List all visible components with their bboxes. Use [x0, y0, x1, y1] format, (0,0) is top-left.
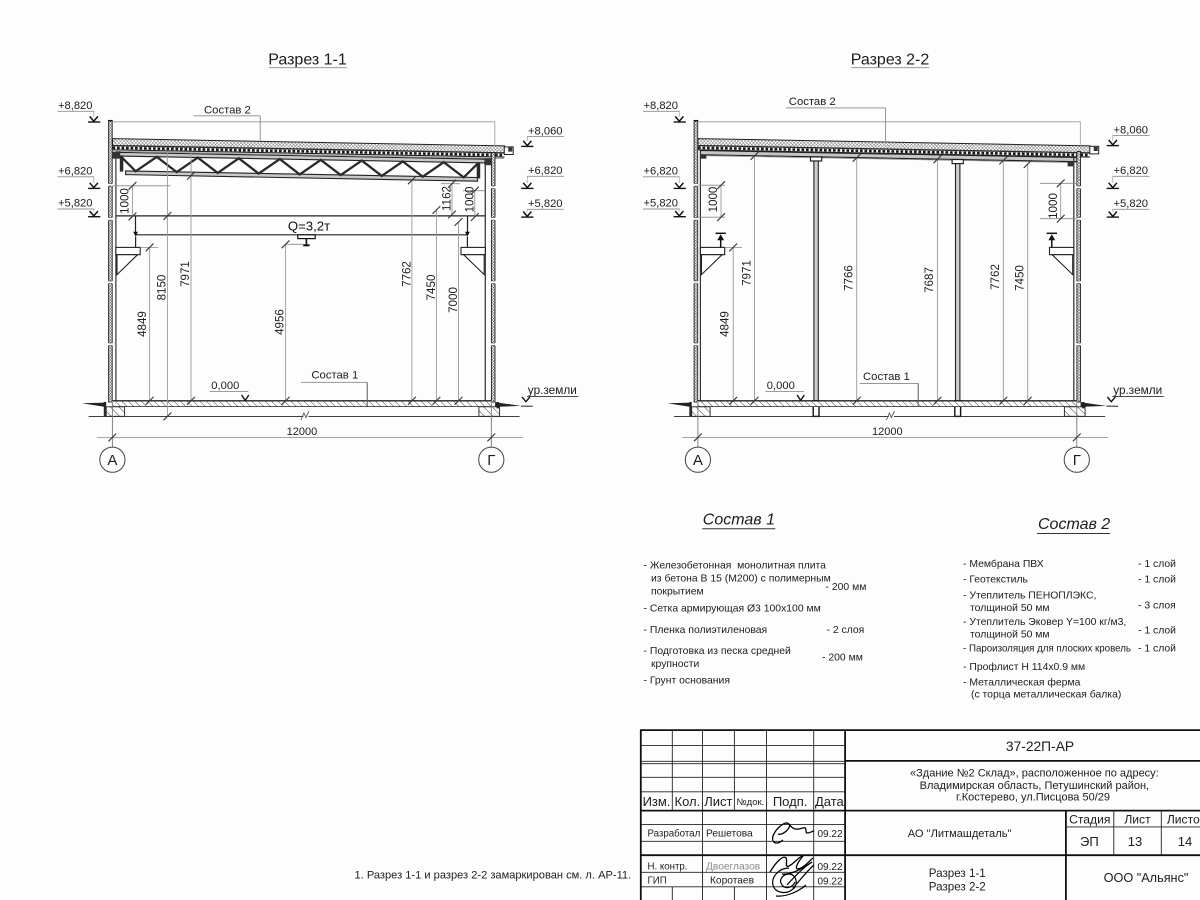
- svg-text:из бетона В 15 (М200) с полиме: из бетона В 15 (М200) с полимерным: [651, 573, 831, 585]
- svg-text:толщиной 50 мм: толщиной 50 мм: [970, 630, 1050, 641]
- svg-text:- Утеплитель ПЕНОПЛЭКС,: - Утеплитель ПЕНОПЛЭКС,: [963, 591, 1096, 602]
- svg-text:7450: 7450: [1014, 265, 1027, 291]
- svg-text:- Мембрана ПВХ: - Мембрана ПВХ: [963, 558, 1044, 570]
- svg-text:1000: 1000: [1047, 193, 1060, 219]
- svg-text:г.Костерево, ул.Писцова 50/29: г.Костерево, ул.Писцова 50/29: [956, 791, 1110, 803]
- svg-text:09.22: 09.22: [818, 829, 843, 840]
- svg-text:ГИП: ГИП: [648, 876, 667, 887]
- svg-text:+8,060: +8,060: [1114, 124, 1149, 136]
- svg-text:13: 13: [1128, 834, 1142, 849]
- svg-text:- Пароизоляция для плоских кро: - Пароизоляция для плоских кровель: [963, 644, 1131, 655]
- svg-text:А: А: [693, 452, 703, 469]
- svg-text:- Подготовка из песка средней: - Подготовка из песка средней: [644, 646, 792, 657]
- svg-text:- Геотекстиль: - Геотекстиль: [963, 575, 1028, 586]
- svg-text:7687: 7687: [923, 267, 936, 293]
- svg-text:АО "Литмашдеталь": АО "Литмашдеталь": [908, 828, 1012, 840]
- svg-text:7766: 7766: [843, 265, 856, 291]
- svg-text:7971: 7971: [179, 261, 192, 287]
- svg-text:Состав 2: Состав 2: [204, 105, 251, 117]
- svg-text:Кол.: Кол.: [675, 794, 701, 809]
- svg-text:Разрез 2-2: Разрез 2-2: [851, 51, 930, 68]
- svg-text:Изм.: Изм.: [643, 794, 671, 809]
- svg-text:37-22П-АР: 37-22П-АР: [1006, 739, 1074, 754]
- svg-text:- 3 слоя: - 3 слоя: [1138, 601, 1176, 612]
- svg-text:- 1 слой: - 1 слой: [1138, 644, 1176, 655]
- svg-text:7971: 7971: [741, 260, 754, 286]
- svg-text:- Профлист Н 114х0.9 мм: - Профлист Н 114х0.9 мм: [963, 661, 1085, 673]
- svg-text:Состав 1: Состав 1: [863, 371, 910, 383]
- svg-text:№док.: №док.: [736, 797, 764, 808]
- svg-text:4849: 4849: [719, 311, 732, 337]
- svg-text:+8,060: +8,060: [528, 125, 563, 137]
- svg-text:ООО "Альянс": ООО "Альянс": [1104, 871, 1189, 885]
- svg-text:Разработал: Разработал: [648, 828, 701, 839]
- svg-text:Н. контр.: Н. контр.: [648, 861, 688, 872]
- svg-text:Состав 2: Состав 2: [789, 96, 836, 108]
- svg-text:- 2 слоя: - 2 слоя: [827, 625, 865, 636]
- svg-text:7762: 7762: [989, 264, 1002, 290]
- svg-text:0,000: 0,000: [211, 380, 239, 392]
- svg-text:Листов: Листов: [1167, 812, 1200, 826]
- svg-text:1000: 1000: [463, 187, 476, 213]
- svg-text:ур.земли: ур.земли: [1113, 383, 1162, 397]
- svg-text:крупности: крупности: [651, 659, 700, 670]
- svg-text:Q=3,2т: Q=3,2т: [288, 219, 330, 234]
- svg-text:Коротаев: Коротаев: [710, 876, 754, 887]
- svg-text:Владимирская область, Петушинс: Владимирская область, Петушинский район,: [920, 780, 1149, 792]
- svg-text:7762: 7762: [400, 261, 413, 287]
- svg-text:- 1 слой: - 1 слой: [1138, 559, 1176, 570]
- svg-text:12000: 12000: [872, 426, 903, 438]
- svg-text:Состав 2: Состав 2: [1038, 516, 1110, 533]
- svg-text:1000: 1000: [118, 188, 131, 214]
- svg-text:12000: 12000: [287, 426, 318, 438]
- svg-text:4956: 4956: [273, 309, 286, 335]
- svg-text:- 1 слой: - 1 слой: [1138, 575, 1176, 586]
- svg-text:- Пленка полиэтиленовая: - Пленка полиэтиленовая: [644, 625, 768, 636]
- svg-text:«Здание №2 Склад», расположенн: «Здание №2 Склад», расположенное по адре…: [910, 768, 1159, 780]
- svg-text:7450: 7450: [425, 275, 438, 301]
- svg-text:1. Разрез 1-1 и разрез 2-2 зам: 1. Разрез 1-1 и разрез 2-2 замаркирован …: [355, 869, 632, 881]
- svg-text:Решетова: Решетова: [706, 828, 753, 839]
- svg-text:+5,820: +5,820: [1114, 198, 1149, 210]
- svg-text:+5,820: +5,820: [58, 198, 93, 210]
- svg-text:Состав 1: Состав 1: [703, 512, 775, 529]
- svg-text:- Железобетонная монолитная п: - Железобетонная монолитная плита: [644, 560, 827, 572]
- svg-text:Г: Г: [487, 452, 495, 469]
- svg-text:4849: 4849: [136, 311, 149, 337]
- svg-text:- 1 слой: - 1 слой: [1138, 626, 1176, 637]
- svg-text:09.22: 09.22: [818, 862, 843, 873]
- svg-text:+5,820: +5,820: [643, 198, 678, 210]
- svg-text:+6,820: +6,820: [58, 166, 93, 178]
- svg-text:1000: 1000: [707, 187, 720, 213]
- svg-text:09.22: 09.22: [818, 876, 843, 887]
- svg-text:- Металлическая ферма: - Металлическая ферма: [963, 677, 1081, 689]
- svg-text:- Грунт основания: - Грунт основания: [644, 676, 730, 687]
- svg-text:Подп.: Подп.: [773, 794, 808, 809]
- svg-text:+6,820: +6,820: [528, 165, 563, 177]
- svg-text:Разрез 1-1: Разрез 1-1: [929, 867, 986, 880]
- svg-text:- Сетка армирующая Ø3 100х100: - Сетка армирующая Ø3 100х100 мм: [644, 603, 821, 614]
- svg-text:0,000: 0,000: [767, 380, 795, 392]
- svg-text:1162: 1162: [440, 186, 453, 211]
- svg-text:ЭП: ЭП: [1080, 834, 1099, 849]
- svg-text:А: А: [107, 452, 117, 469]
- svg-text:Состав 1: Состав 1: [311, 370, 358, 382]
- svg-text:8150: 8150: [155, 275, 168, 301]
- svg-text:Г: Г: [1073, 452, 1081, 469]
- svg-text:Дата: Дата: [815, 794, 845, 809]
- svg-text:(с торца металлическая балка): (с торца металлическая балка): [971, 689, 1121, 701]
- svg-text:+6,820: +6,820: [643, 166, 678, 178]
- svg-text:+8,820: +8,820: [58, 100, 93, 112]
- svg-text:покрытием: покрытием: [651, 587, 704, 598]
- svg-text:7000: 7000: [447, 287, 460, 313]
- svg-text:+8,820: +8,820: [643, 100, 678, 112]
- svg-text:+5,820: +5,820: [528, 198, 563, 210]
- svg-text:- 200 мм: - 200 мм: [822, 653, 863, 664]
- svg-text:Разрез 1-1: Разрез 1-1: [268, 51, 347, 68]
- svg-text:Лист: Лист: [704, 794, 732, 809]
- svg-text:+6,820: +6,820: [1114, 165, 1149, 177]
- svg-text:14: 14: [1178, 834, 1192, 849]
- svg-text:Лист: Лист: [1124, 812, 1151, 826]
- svg-text:ур.земли: ур.земли: [528, 383, 577, 397]
- svg-text:толщиной 50 мм: толщиной 50 мм: [970, 603, 1050, 614]
- svg-text:Стадия: Стадия: [1069, 812, 1110, 826]
- svg-text:Разрез 2-2: Разрез 2-2: [929, 880, 986, 893]
- svg-text:- 200 мм: - 200 мм: [826, 582, 867, 593]
- svg-text:Двоеглазов: Двоеглазов: [706, 861, 760, 872]
- svg-text:- Утеплитель Эковер Y=100 кг/м: - Утеплитель Эковер Y=100 кг/м3,: [963, 617, 1126, 628]
